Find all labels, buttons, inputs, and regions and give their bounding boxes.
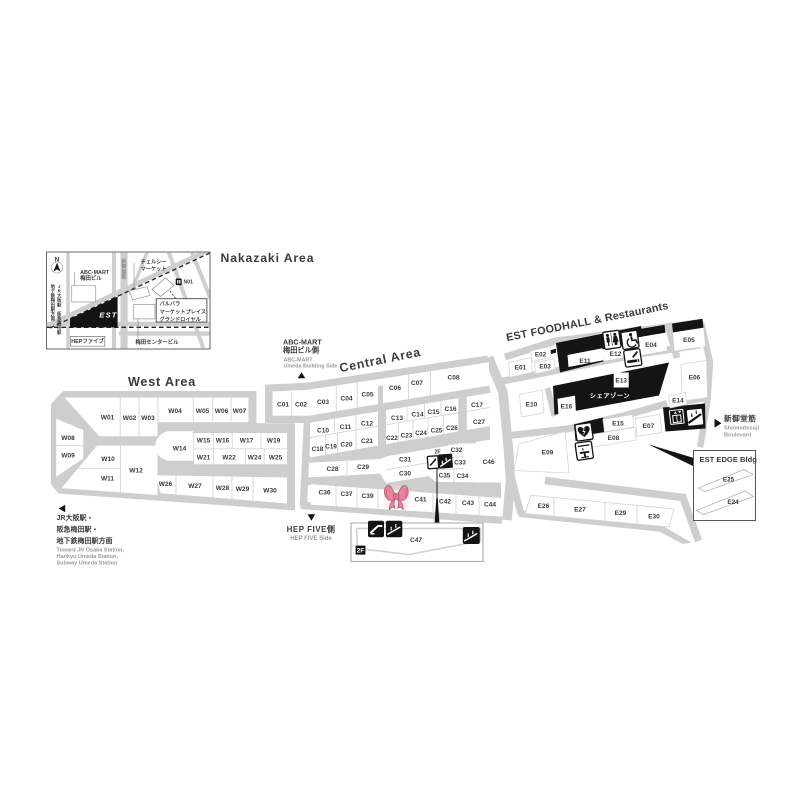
svg-text:C37: C37	[340, 491, 352, 498]
svg-text:C44: C44	[484, 502, 496, 509]
svg-text:W19: W19	[267, 438, 281, 445]
svg-text:C29: C29	[357, 464, 369, 471]
svg-text:W14: W14	[173, 446, 187, 453]
svg-text:E30: E30	[648, 513, 660, 520]
svg-text:W22: W22	[222, 454, 236, 461]
svg-text:HEP FIVE Side: HEP FIVE Side	[290, 536, 332, 542]
svg-text:C30: C30	[399, 470, 411, 477]
svg-text:W12: W12	[129, 467, 143, 474]
svg-text:E26: E26	[538, 503, 550, 510]
svg-text:Boulevard: Boulevard	[724, 433, 752, 439]
svg-text:C35: C35	[439, 473, 451, 480]
svg-text:C39: C39	[361, 493, 373, 500]
svg-text:C11: C11	[340, 424, 352, 431]
svg-text:梅田ビル側: 梅田ビル側	[283, 346, 319, 355]
svg-text:E08: E08	[608, 435, 620, 442]
svg-text:C17: C17	[471, 402, 483, 409]
svg-text:E15: E15	[612, 421, 624, 428]
svg-text:W27: W27	[188, 483, 202, 490]
svg-text:W09: W09	[61, 453, 75, 460]
svg-text:E25: E25	[723, 476, 735, 483]
svg-text:2F: 2F	[357, 548, 365, 555]
svg-text:バルバラ: バルバラ	[160, 301, 181, 308]
svg-text:チェルシー: チェルシー	[141, 258, 167, 265]
svg-text:W28: W28	[216, 485, 230, 492]
svg-text:C42: C42	[439, 498, 451, 505]
svg-text:C08: C08	[447, 374, 459, 381]
svg-text:W25: W25	[269, 454, 283, 461]
svg-text:新御堂筋: 新御堂筋	[724, 413, 756, 423]
svg-text:C43: C43	[462, 500, 474, 507]
svg-text:E27: E27	[574, 506, 586, 513]
svg-text:C21: C21	[361, 438, 373, 445]
svg-text:W26: W26	[159, 481, 173, 488]
svg-text:C27: C27	[473, 419, 485, 426]
svg-text:W16: W16	[216, 438, 230, 445]
svg-text:C10: C10	[317, 427, 329, 434]
svg-text:W06: W06	[215, 408, 229, 415]
svg-text:HEP FIVE側: HEP FIVE側	[287, 524, 336, 534]
svg-text:N01: N01	[184, 280, 194, 286]
svg-text:地下鉄梅田駅方面: 地下鉄梅田駅方面	[51, 283, 56, 322]
svg-text:C22: C22	[386, 435, 398, 442]
svg-text:E16: E16	[561, 404, 573, 411]
svg-text:C47: C47	[410, 537, 422, 544]
svg-text:JR大阪駅・: JR大阪駅・	[57, 513, 94, 522]
svg-text:W01: W01	[101, 415, 115, 422]
svg-text:C03: C03	[317, 399, 329, 406]
svg-text:W15: W15	[197, 438, 211, 445]
svg-text:C31: C31	[399, 457, 411, 464]
svg-text:W04: W04	[168, 408, 182, 415]
svg-text:Toward JR Osaka Station,: Toward JR Osaka Station,	[57, 548, 125, 554]
svg-text:C19: C19	[325, 444, 337, 451]
svg-text:C25: C25	[431, 428, 443, 435]
svg-text:C23: C23	[401, 432, 413, 439]
svg-text:C18: C18	[312, 446, 324, 453]
svg-text:C32: C32	[451, 447, 463, 454]
svg-text:W21: W21	[197, 454, 211, 461]
svg-text:Nakazaki Area: Nakazaki Area	[221, 251, 315, 265]
svg-text:HEPファイブ: HEPファイブ	[71, 337, 104, 345]
svg-text:E06: E06	[689, 374, 701, 381]
svg-text:C04: C04	[340, 395, 352, 402]
svg-text:C36: C36	[318, 490, 330, 497]
svg-text:C33: C33	[454, 459, 466, 466]
svg-text:W02: W02	[123, 415, 137, 422]
svg-text:EST EDGE Bldg: EST EDGE Bldg	[700, 455, 758, 464]
svg-text:梅田ビル: 梅田ビル	[80, 274, 102, 282]
svg-text:C07: C07	[411, 380, 423, 387]
svg-text:E12: E12	[610, 351, 622, 358]
svg-text:C12: C12	[361, 420, 373, 427]
svg-text:グランドロイヤル: グランドロイヤル	[160, 315, 202, 323]
svg-text:C13: C13	[391, 415, 403, 422]
svg-text:梅田センタービル: 梅田センタービル	[135, 338, 179, 346]
svg-text:C14: C14	[411, 411, 423, 418]
svg-text:C16: C16	[444, 406, 456, 413]
svg-text:C28: C28	[326, 466, 338, 473]
svg-text:West Area: West Area	[128, 375, 196, 389]
svg-text:W24: W24	[248, 454, 262, 461]
svg-text:E24: E24	[727, 499, 739, 506]
svg-text:ABC-MART: ABC-MART	[284, 357, 314, 363]
svg-text:C05: C05	[361, 391, 373, 398]
svg-text:E05: E05	[683, 337, 695, 344]
svg-text:C02: C02	[295, 401, 307, 408]
svg-text:E07: E07	[643, 423, 655, 430]
svg-text:シェアゾーン: シェアゾーン	[590, 392, 630, 400]
svg-text:E04: E04	[645, 342, 657, 349]
svg-text:E29: E29	[615, 510, 627, 517]
svg-text:マーケット: マーケット	[141, 265, 167, 272]
svg-text:Subway Umeda Station: Subway Umeda Station	[57, 561, 118, 567]
svg-text:W17: W17	[240, 438, 254, 445]
svg-text:C26: C26	[446, 425, 458, 432]
svg-text:阪急梅田駅・: 阪急梅田駅・	[57, 525, 99, 534]
svg-text:マーケットプレイス: マーケットプレイス	[160, 307, 207, 315]
svg-text:C20: C20	[340, 441, 352, 448]
svg-text:E11: E11	[579, 358, 591, 365]
svg-text:C06: C06	[389, 385, 401, 392]
svg-text:N: N	[55, 257, 60, 264]
svg-text:C34: C34	[457, 473, 469, 480]
svg-text:C01: C01	[277, 401, 289, 408]
svg-text:W07: W07	[233, 408, 247, 415]
svg-text:E01: E01	[515, 365, 527, 372]
svg-text:W11: W11	[101, 476, 114, 483]
svg-text:E13: E13	[615, 377, 627, 384]
svg-text:W03: W03	[141, 415, 155, 422]
svg-text:W30: W30	[263, 488, 277, 495]
svg-text:E02: E02	[535, 352, 547, 359]
svg-text:Hankyu Umeda Station,: Hankyu Umeda Station,	[57, 554, 119, 560]
svg-text:E14: E14	[672, 398, 684, 405]
svg-text:Umeda Building Side: Umeda Building Side	[284, 364, 338, 370]
svg-text:W29: W29	[236, 486, 250, 493]
svg-text:新御堂筋: 新御堂筋	[120, 258, 126, 281]
svg-text:E10: E10	[526, 401, 538, 408]
svg-text:W08: W08	[61, 435, 75, 442]
svg-text:Shinmidosuji: Shinmidosuji	[724, 426, 760, 432]
svg-text:C46: C46	[482, 459, 494, 466]
svg-text:地下鉄梅田駅方面: 地下鉄梅田駅方面	[57, 536, 113, 545]
svg-text:C15: C15	[427, 409, 439, 416]
svg-text:W05: W05	[196, 408, 210, 415]
svg-text:C24: C24	[415, 430, 427, 437]
svg-text:W10: W10	[101, 456, 115, 463]
svg-text:EST: EST	[99, 310, 117, 319]
svg-text:C41: C41	[414, 497, 426, 504]
svg-text:E03: E03	[539, 364, 551, 371]
svg-text:E09: E09	[542, 450, 554, 457]
